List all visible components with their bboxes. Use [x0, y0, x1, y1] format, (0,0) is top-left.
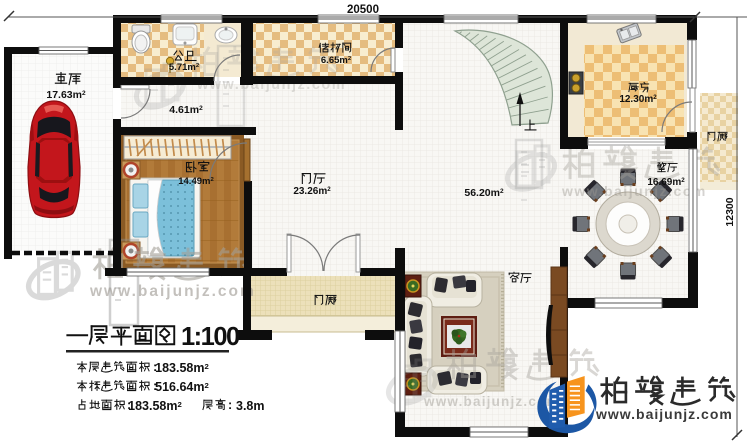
- svg-text:516.64m2: 516.64m2: [155, 380, 209, 394]
- svg-text:www.baijunjz.com: www.baijunjz.com: [595, 406, 733, 422]
- svg-text:1:100: 1:100: [181, 323, 240, 351]
- svg-text:5.71m2: 5.71m2: [169, 62, 200, 73]
- svg-text:12.30m2: 12.30m2: [619, 94, 657, 105]
- svg-text:3.8m: 3.8m: [236, 399, 265, 413]
- svg-text:www.baijunjz.com: www.baijunjz.com: [89, 283, 256, 300]
- svg-text:6.65m2: 6.65m2: [321, 55, 352, 66]
- svg-text:20500: 20500: [347, 4, 379, 16]
- svg-text:4.61m2: 4.61m2: [169, 104, 203, 116]
- svg-text:23.26m2: 23.26m2: [293, 186, 331, 197]
- svg-text:12300: 12300: [724, 197, 736, 226]
- svg-text:www.baijunjz.com: www.baijunjz.com: [561, 183, 707, 199]
- svg-text:183.58m2: 183.58m2: [155, 361, 209, 375]
- svg-text::: :: [228, 398, 232, 412]
- svg-text:56.20m2: 56.20m2: [464, 187, 504, 199]
- svg-text:16.69m2: 16.69m2: [647, 177, 685, 188]
- svg-text:14.49m2: 14.49m2: [178, 176, 214, 187]
- svg-text:183.58m2: 183.58m2: [128, 399, 182, 413]
- svg-text:17.63m2: 17.63m2: [46, 89, 86, 101]
